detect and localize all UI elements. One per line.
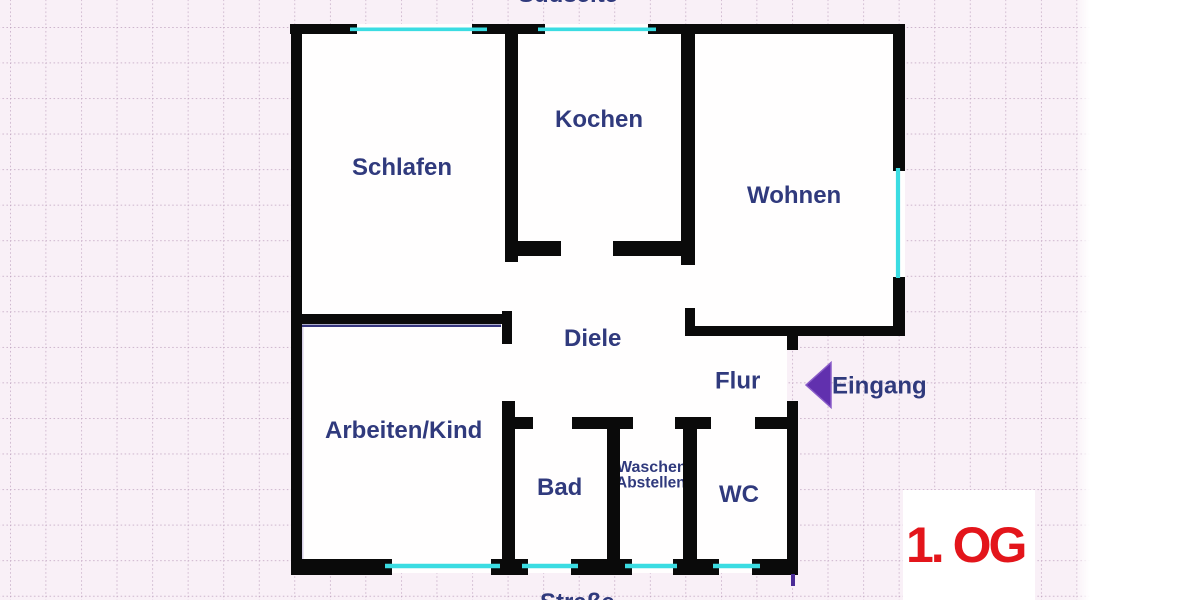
svg-text:Arbeiten/Kind: Arbeiten/Kind <box>325 417 482 444</box>
svg-text:Wohnen: Wohnen <box>747 182 841 209</box>
svg-text:1. OG: 1. OG <box>906 517 1024 573</box>
svg-text:Kochen: Kochen <box>555 106 643 133</box>
svg-text:Schlafen: Schlafen <box>352 154 452 181</box>
svg-text:Abstellen: Abstellen <box>616 475 686 492</box>
svg-text:WC: WC <box>719 481 759 508</box>
svg-text:Diele: Diele <box>564 325 621 352</box>
svg-text:Eingang: Eingang <box>832 373 927 400</box>
svg-text:Waschen: Waschen <box>617 459 687 476</box>
svg-text:Bad: Bad <box>537 474 582 501</box>
svg-text:Südseite: Südseite <box>518 0 618 8</box>
svg-text:Flur: Flur <box>715 368 760 395</box>
svg-text:Straße: Straße <box>540 589 615 600</box>
